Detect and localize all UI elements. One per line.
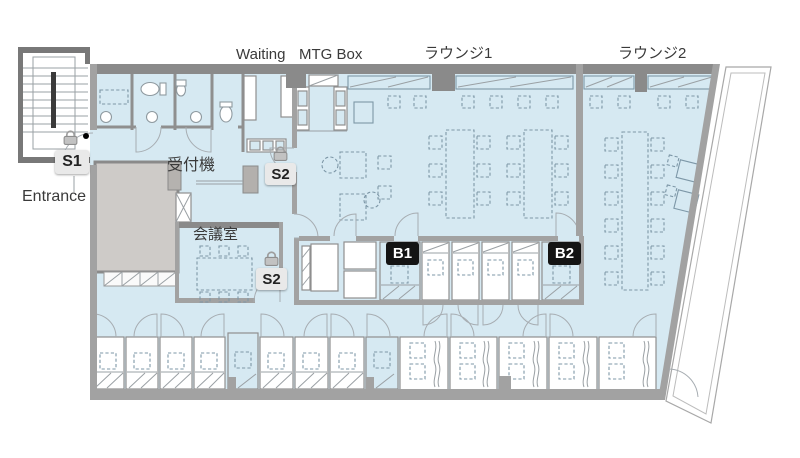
label-mtg-box: MTG Box bbox=[299, 47, 362, 62]
marker-b2: B2 bbox=[548, 242, 581, 265]
entrance-sensor-dot bbox=[83, 133, 89, 139]
label-waiting: Waiting bbox=[236, 47, 285, 62]
marker-s2-upper: S2 bbox=[265, 163, 296, 185]
label-lounge2: ラウンジ2 bbox=[618, 46, 686, 61]
floorplan-drawing bbox=[0, 0, 800, 458]
label-reception-machine: 受付機 bbox=[167, 158, 215, 174]
lounge-divider-wall bbox=[576, 64, 583, 236]
label-entrance: Entrance bbox=[22, 189, 86, 205]
floorplan-image: Waiting MTG Box ラウンジ1 ラウンジ2 受付機 会議室 Entr… bbox=[0, 0, 800, 458]
lock-icon bbox=[272, 146, 289, 161]
marker-b1: B1 bbox=[386, 242, 419, 265]
label-lounge1: ラウンジ1 bbox=[424, 46, 492, 61]
marker-s1: S1 bbox=[55, 150, 89, 174]
staircase bbox=[18, 47, 90, 163]
lock-icon bbox=[263, 251, 280, 266]
lockers bbox=[104, 272, 176, 286]
lock-icon bbox=[62, 130, 79, 145]
stair-handrail bbox=[51, 72, 56, 128]
toilet-icon bbox=[220, 106, 232, 122]
marker-s2-lower: S2 bbox=[256, 268, 287, 290]
label-meeting-room: 会議室 bbox=[193, 227, 238, 242]
